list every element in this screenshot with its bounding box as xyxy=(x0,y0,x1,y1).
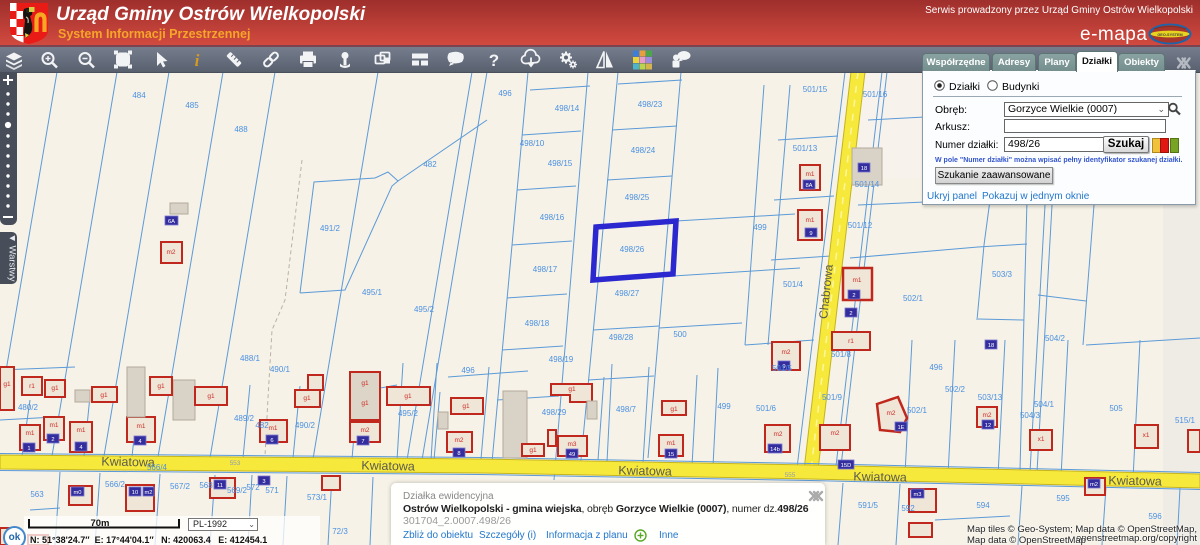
svg-text:72/3: 72/3 xyxy=(332,527,348,536)
svg-text:Kwiatowa: Kwiatowa xyxy=(618,463,672,478)
svg-text:501/5: 501/5 xyxy=(772,364,793,373)
svg-text:15: 15 xyxy=(668,452,674,458)
svg-text:496: 496 xyxy=(498,89,512,98)
svg-text:499: 499 xyxy=(753,223,767,232)
svg-text:m2: m2 xyxy=(773,431,782,438)
svg-text:g1: g1 xyxy=(670,406,678,413)
svg-text:567/2: 567/2 xyxy=(170,482,191,491)
svg-text:m2: m2 xyxy=(830,430,839,437)
svg-text:482: 482 xyxy=(423,160,437,169)
svg-text:g1: g1 xyxy=(303,395,311,402)
svg-text:?: ? xyxy=(489,51,499,70)
svg-text:495/2: 495/2 xyxy=(398,409,419,418)
svg-text:501/14: 501/14 xyxy=(855,180,880,189)
svg-text:g1: g1 xyxy=(462,403,470,410)
svg-text:568: 568 xyxy=(199,481,213,490)
svg-text:573/1: 573/1 xyxy=(307,493,328,502)
svg-text:m1: m1 xyxy=(852,277,861,284)
svg-text:503/13: 503/13 xyxy=(978,393,1003,402)
svg-text:m3: m3 xyxy=(913,492,921,498)
svg-text:m2: m2 xyxy=(886,410,895,417)
svg-text:515/1: 515/1 xyxy=(1175,416,1196,425)
svg-text:496: 496 xyxy=(461,366,475,375)
svg-text:480/2: 480/2 xyxy=(18,403,39,412)
svg-text:GEO-SYSTEM: GEO-SYSTEM xyxy=(1157,33,1182,37)
svg-text:8: 8 xyxy=(457,451,460,457)
svg-text:502/1: 502/1 xyxy=(903,294,924,303)
svg-text:9: 9 xyxy=(809,231,812,237)
svg-text:m1: m1 xyxy=(136,423,145,430)
svg-text:489/2: 489/2 xyxy=(234,414,255,423)
svg-text:x1: x1 xyxy=(1038,436,1045,443)
svg-text:495/1: 495/1 xyxy=(362,288,383,297)
svg-text:501/8: 501/8 xyxy=(831,350,852,359)
svg-text:484: 484 xyxy=(132,91,146,100)
svg-text:m2: m2 xyxy=(360,427,369,434)
svg-text:504/3: 504/3 xyxy=(1020,411,1041,420)
svg-text:m2: m2 xyxy=(454,437,463,444)
svg-text:501/15: 501/15 xyxy=(803,85,828,94)
svg-text:490/2: 490/2 xyxy=(295,421,316,430)
svg-text:505: 505 xyxy=(1109,404,1123,413)
svg-text:49: 49 xyxy=(569,452,575,458)
svg-text:g1: g1 xyxy=(3,381,11,388)
svg-text:498/19: 498/19 xyxy=(549,355,574,364)
svg-text:g1: g1 xyxy=(529,447,537,454)
svg-text:566/4: 566/4 xyxy=(147,463,168,472)
svg-text:501/4: 501/4 xyxy=(783,280,804,289)
svg-text:503/3: 503/3 xyxy=(992,270,1013,279)
svg-text:563: 563 xyxy=(30,490,44,499)
svg-text:566/2: 566/2 xyxy=(105,480,126,489)
svg-text:594: 594 xyxy=(976,501,990,510)
svg-text:6: 6 xyxy=(270,438,273,444)
svg-text:m1: m1 xyxy=(805,217,814,224)
svg-text:502/2: 502/2 xyxy=(945,385,966,394)
svg-text:m0: m0 xyxy=(73,490,81,496)
svg-text:498/29: 498/29 xyxy=(542,408,567,417)
svg-text:500: 500 xyxy=(673,330,687,339)
svg-text:g1: g1 xyxy=(157,383,165,390)
svg-text:18: 18 xyxy=(861,166,867,172)
svg-text:2: 2 xyxy=(849,311,852,317)
svg-text:490/1: 490/1 xyxy=(270,365,291,374)
svg-text:m2: m2 xyxy=(982,412,991,419)
svg-text:g1: g1 xyxy=(51,385,59,392)
svg-text:g1: g1 xyxy=(100,392,108,399)
svg-text:12: 12 xyxy=(985,423,991,429)
svg-text:g1: g1 xyxy=(404,393,412,400)
svg-text:2: 2 xyxy=(51,437,54,443)
svg-text:m2: m2 xyxy=(1090,482,1098,488)
svg-text:499: 499 xyxy=(717,402,731,411)
svg-text:8A: 8A xyxy=(805,183,812,189)
svg-text:596: 596 xyxy=(1148,512,1162,521)
svg-text:488: 488 xyxy=(234,125,248,134)
svg-text:498/26: 498/26 xyxy=(620,245,645,254)
svg-text:15D: 15D xyxy=(841,463,852,469)
svg-text:18: 18 xyxy=(988,343,994,349)
svg-text:504/1: 504/1 xyxy=(1034,400,1055,409)
svg-text:3: 3 xyxy=(262,479,265,485)
svg-text:498/28: 498/28 xyxy=(609,333,634,342)
svg-text:591/5: 591/5 xyxy=(858,501,879,510)
svg-text:498/15: 498/15 xyxy=(548,159,573,168)
svg-text:m1: m1 xyxy=(805,171,814,178)
svg-text:m1: m1 xyxy=(25,430,34,437)
svg-text:555: 555 xyxy=(785,472,796,479)
svg-text:2: 2 xyxy=(852,293,855,299)
svg-text:Kwiatowa: Kwiatowa xyxy=(853,469,907,484)
svg-text:m2: m2 xyxy=(781,349,790,356)
svg-text:502/1: 502/1 xyxy=(907,406,928,415)
svg-text:7: 7 xyxy=(361,439,364,445)
svg-text:m1: m1 xyxy=(49,422,58,429)
svg-text:11: 11 xyxy=(217,483,223,489)
svg-text:g1: g1 xyxy=(361,400,369,407)
svg-text:m2: m2 xyxy=(144,490,152,496)
svg-text:569/2: 569/2 xyxy=(227,486,248,495)
svg-text:1E: 1E xyxy=(897,425,904,431)
svg-text:498/18: 498/18 xyxy=(525,319,550,328)
svg-text:495/2: 495/2 xyxy=(414,305,435,314)
svg-text:m3: m3 xyxy=(567,441,576,448)
svg-text:Kwiatowa: Kwiatowa xyxy=(1108,473,1162,488)
svg-text:571: 571 xyxy=(265,486,279,495)
svg-text:g1: g1 xyxy=(207,393,215,400)
svg-text:501/12: 501/12 xyxy=(848,221,873,230)
svg-text:501/9: 501/9 xyxy=(822,393,843,402)
svg-text:m1: m1 xyxy=(76,427,85,434)
svg-text:485: 485 xyxy=(185,101,199,110)
svg-text:14b: 14b xyxy=(770,447,780,453)
svg-text:553: 553 xyxy=(230,460,241,467)
svg-text:Kwiatowa: Kwiatowa xyxy=(361,458,415,473)
svg-text:592: 592 xyxy=(901,504,915,513)
svg-text:r1: r1 xyxy=(29,383,35,390)
svg-text:498/24: 498/24 xyxy=(631,146,656,155)
svg-text:498/25: 498/25 xyxy=(625,193,650,202)
svg-text:498/16: 498/16 xyxy=(540,213,565,222)
svg-text:498/14: 498/14 xyxy=(555,104,580,113)
svg-text:498/7: 498/7 xyxy=(616,405,637,414)
svg-text:504/2: 504/2 xyxy=(1045,334,1066,343)
svg-text:595: 595 xyxy=(1056,494,1070,503)
svg-text:501/13: 501/13 xyxy=(793,144,818,153)
svg-text:10: 10 xyxy=(132,490,138,496)
svg-text:x1: x1 xyxy=(1143,432,1150,439)
svg-text:498/10: 498/10 xyxy=(520,139,545,148)
svg-text:m2: m2 xyxy=(166,249,175,256)
svg-text:498/23: 498/23 xyxy=(638,100,663,109)
svg-text:501/6: 501/6 xyxy=(756,404,777,413)
svg-text:r1: r1 xyxy=(848,338,854,345)
svg-text:g1: g1 xyxy=(568,386,576,393)
svg-text:g1: g1 xyxy=(361,380,369,387)
svg-text:498/17: 498/17 xyxy=(533,265,558,274)
svg-text:i: i xyxy=(195,51,200,70)
svg-text:491/2: 491/2 xyxy=(320,224,341,233)
svg-text:482: 482 xyxy=(255,421,269,430)
svg-text:6A: 6A xyxy=(168,219,175,225)
svg-text:488/1: 488/1 xyxy=(240,354,261,363)
svg-text:498/27: 498/27 xyxy=(615,289,640,298)
svg-text:m1: m1 xyxy=(666,440,675,447)
svg-text:1: 1 xyxy=(27,446,30,452)
svg-text:70m: 70m xyxy=(90,518,109,529)
svg-text:501/16: 501/16 xyxy=(863,90,888,99)
svg-text:m1: m1 xyxy=(268,425,277,432)
svg-text:496: 496 xyxy=(929,363,943,372)
svg-text:572: 572 xyxy=(246,483,260,492)
